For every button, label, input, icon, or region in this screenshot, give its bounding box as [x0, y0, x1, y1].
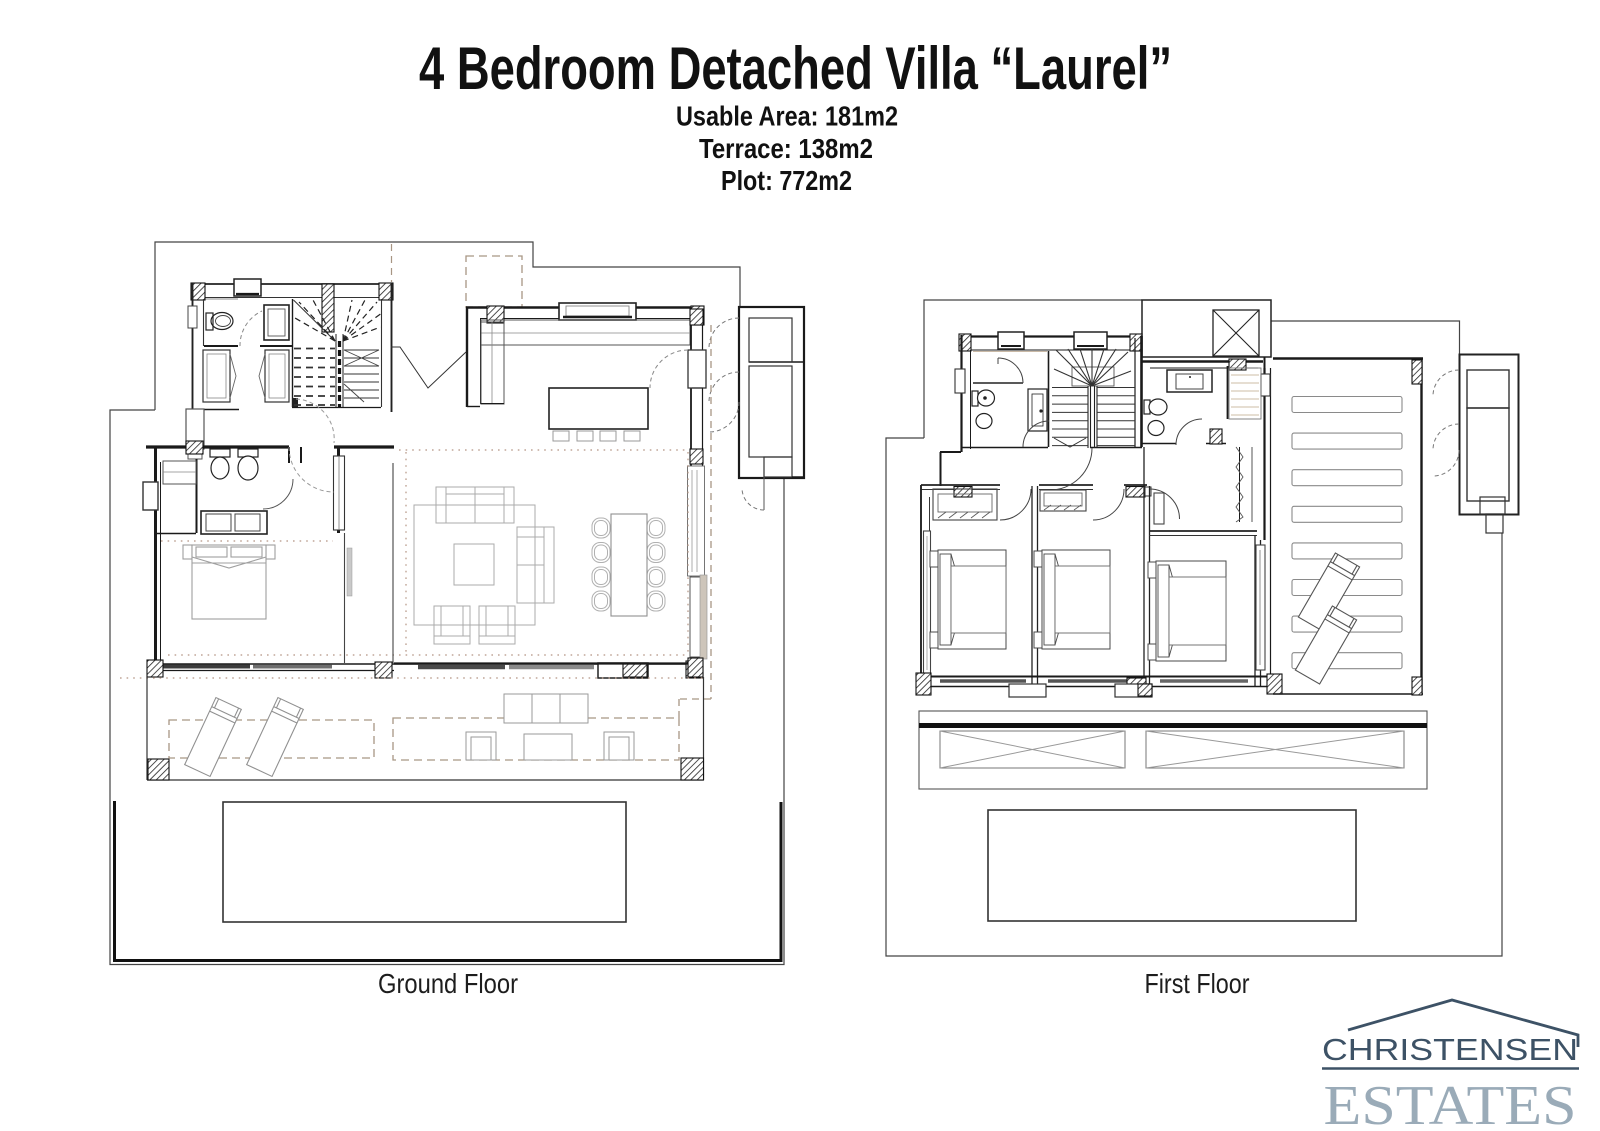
- svg-text:ESTATES: ESTATES: [1324, 1075, 1577, 1131]
- svg-text:CHRISTENSEN: CHRISTENSEN: [1322, 1032, 1578, 1067]
- svg-text:First Floor: First Floor: [1145, 968, 1250, 999]
- svg-text:4 Bedroom Detached Villa “Laur: 4 Bedroom Detached Villa “Laurel”: [419, 35, 1172, 102]
- svg-text:Plot: 772m2: Plot: 772m2: [721, 165, 852, 196]
- svg-text:Usable Area: 181m2: Usable Area: 181m2: [676, 101, 898, 132]
- svg-text:Ground Floor: Ground Floor: [378, 968, 518, 999]
- svg-text:Terrace: 138m2: Terrace: 138m2: [699, 133, 873, 164]
